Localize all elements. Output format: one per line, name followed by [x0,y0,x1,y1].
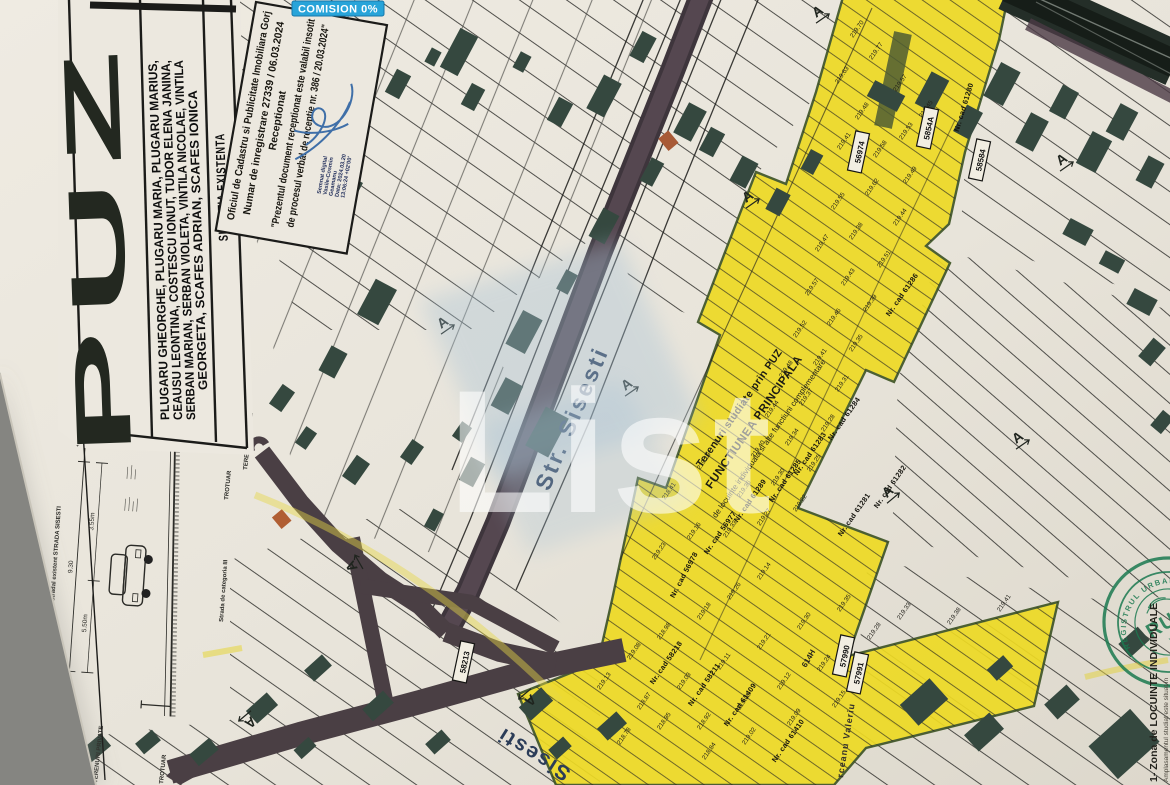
dim-label: 9.30 [67,560,75,573]
scanned-map-photo: 219.70219.77219.63219.57219.48219.53219.… [0,0,1170,785]
puz-title: PUZ [46,35,149,458]
legend-line2: Amplasamentul studiat este situat in [1163,678,1170,782]
comision-badge-label: COMISION 0% [298,4,378,16]
comision-badge: COMISION 0% [292,1,384,16]
dim-label: 5.50m [81,614,89,633]
legend-line1: 1- Zona de LOCUINTE INDIVIDUALE [1148,603,1160,782]
map-canvas: 219.70219.77219.63219.57219.48219.53219.… [0,0,1170,785]
watermark-text: List [448,355,775,550]
